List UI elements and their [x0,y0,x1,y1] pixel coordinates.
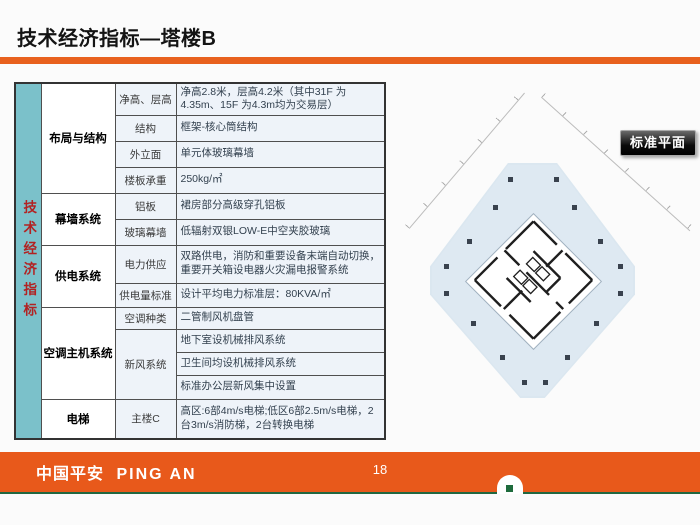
spec-value-cell: 框架-核心筒结构 [176,115,385,141]
category-cell: 幕墙系统 [41,193,115,245]
category-cell: 布局与结构 [41,83,115,193]
spec-value-cell: 高区:6部4m/s电梯;低区6部2.5m/s电梯，2台3m/s消防梯，2台转换电… [176,399,385,439]
spec-label-cell: 空调种类 [115,307,176,329]
footer-peak-logo [497,475,523,494]
spec-label-cell: 新风系统 [115,329,176,399]
spec-table: 技术经济指标 布局与结构 净高、层高 净高2.8米，层高4.2米（其中31F 为… [14,82,386,440]
spec-value-cell: 净高2.8米，层高4.2米（其中31F 为4.35m、15F 为4.3m均为交易… [176,83,385,115]
spec-value-cell: 地下室设机械排风系统 [176,329,385,352]
title-divider [0,57,700,64]
page-number: 18 [340,462,420,477]
category-cell: 供电系统 [41,245,115,307]
slide: 技术经济指标—塔楼B 技术经济指标 布局与结构 净高、层高 净高2.8米，层高4… [0,0,700,525]
vertical-header: 技术经济指标 [15,83,41,439]
brand-logo-en: PING AN [116,466,196,483]
footer-green-line [0,492,700,494]
brand-logo-cn: 中国平安 [36,466,104,483]
spec-label-cell: 电力供应 [115,245,176,283]
spec-value-cell: 标准办公层新风集中设置 [176,375,385,399]
spec-value-cell: 设计平均电力标准层：80KVA/㎡ [176,283,385,307]
category-cell: 空调主机系统 [41,307,115,399]
spec-value-cell: 二管制风机盘管 [176,307,385,329]
spec-label-cell: 楼板承重 [115,167,176,193]
spec-value-cell: 250kg/㎡ [176,167,385,193]
spec-value-cell: 单元体玻璃幕墙 [176,141,385,167]
spec-label-cell: 铝板 [115,193,176,219]
plan-label-badge: 标准平面 [620,130,696,156]
floor-plan: 标准平面 [395,85,700,445]
spec-label-cell: 结构 [115,115,176,141]
spec-value-cell: 裙房部分高级穿孔铝板 [176,193,385,219]
brand-logo: 中国平安 PING AN [36,460,197,484]
column-markers [508,177,513,182]
spec-value-cell: 低辐射双银LOW-E中空夹胶玻璃 [176,219,385,245]
spec-value-cell: 卫生间均设机械排风系统 [176,352,385,375]
spec-value-cell: 双路供电，消防和重要设备末端自动切换，重要开关箱设电器火灾漏电报警系统 [176,245,385,283]
page-title: 技术经济指标—塔楼B [17,22,216,51]
category-cell: 电梯 [41,399,115,439]
spec-label-cell: 供电量标准 [115,283,176,307]
spec-label-cell: 净高、层高 [115,83,176,115]
spec-label-cell: 外立面 [115,141,176,167]
spec-label-cell: 主楼C [115,399,176,439]
spec-label-cell: 玻璃幕墙 [115,219,176,245]
peak-green-square [506,485,513,492]
